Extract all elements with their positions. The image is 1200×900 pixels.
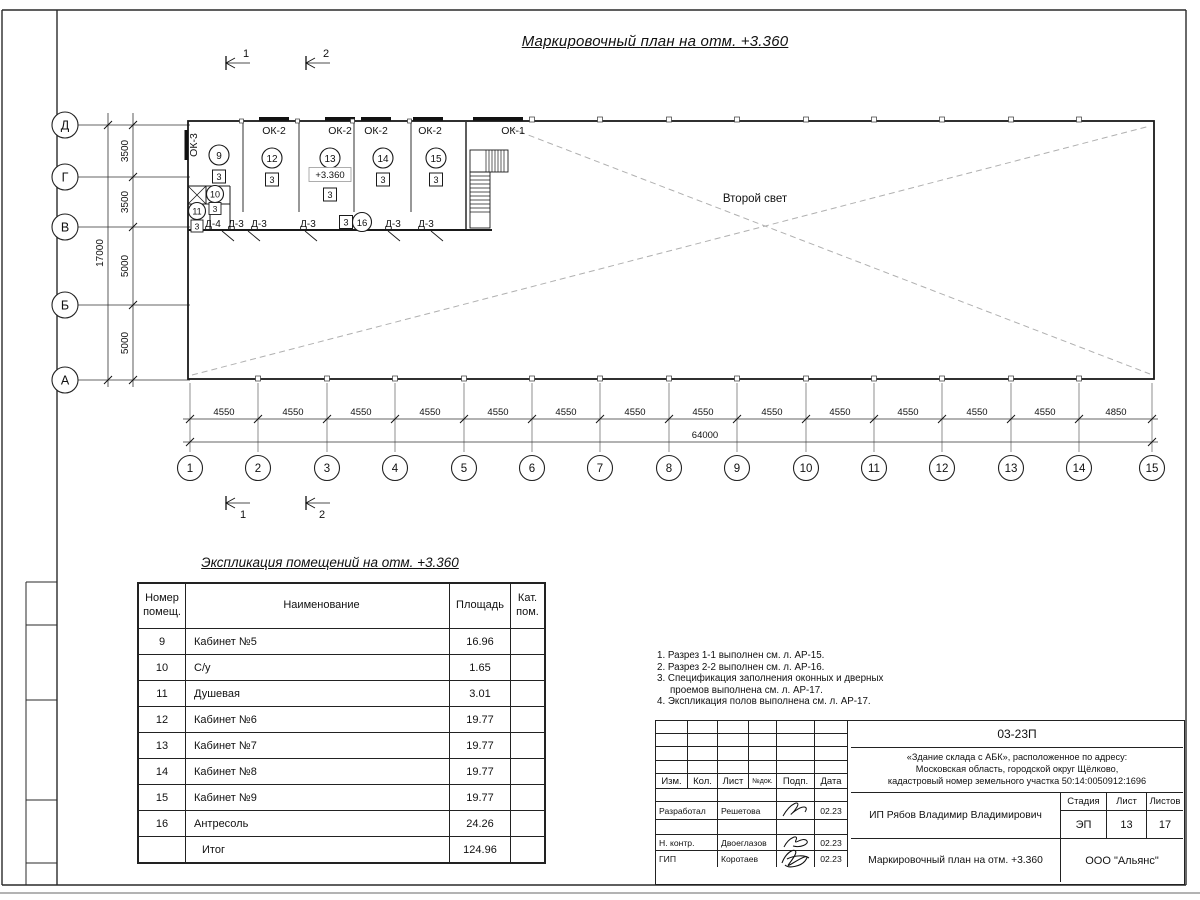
room-category: 3 — [343, 218, 348, 228]
project-line: кадастровый номер земельного участка 50:… — [888, 776, 1146, 788]
sheet-header: Лист — [1107, 793, 1147, 811]
cell-area: 19.77 — [450, 733, 511, 759]
col-list: Лист — [718, 774, 749, 789]
cell-cat — [511, 681, 546, 707]
axis-label: 3 — [324, 463, 330, 475]
date-value: 02.23 — [815, 851, 848, 867]
room-category: 3 — [380, 175, 385, 185]
dim-label: 4550 — [350, 407, 371, 418]
table-row: 12Кабинет №619.77 — [138, 707, 545, 733]
room-number: 13 — [324, 154, 336, 165]
cell-cat — [511, 785, 546, 811]
axis-label: 1 — [187, 463, 193, 475]
axis-label: 5 — [461, 463, 467, 475]
note-line: проемов выполнена см. л. АР-17. — [657, 685, 883, 697]
note-line: 3. Спецификация заполнения оконных и две… — [657, 673, 883, 685]
dim-label: 4550 — [897, 407, 918, 418]
signature-icon — [779, 843, 815, 877]
room-number: 16 — [357, 218, 368, 229]
col-header-cat: Кат. пом. — [511, 583, 546, 629]
dim-label: 4550 — [419, 407, 440, 418]
room-category: 3 — [195, 222, 200, 232]
cell-area: 19.77 — [450, 759, 511, 785]
window-label: ОК-2 — [328, 125, 352, 137]
cell-num: 13 — [138, 733, 186, 759]
room-category: 3 — [213, 204, 218, 214]
cell-name: Итог — [186, 837, 450, 864]
table-row: 9Кабинет №516.96 — [138, 629, 545, 655]
axis-label: 6 — [529, 463, 535, 475]
person-name: Двоеглазов — [718, 835, 777, 851]
signature-cell — [777, 802, 815, 820]
axis-label: 9 — [734, 463, 740, 475]
cell-cat — [511, 759, 546, 785]
role-label: ГИП — [656, 851, 718, 867]
room-number: 11 — [192, 207, 201, 217]
title-block-revision-grid: Изм. Кол. Лист №док. Подп. Дата Разработ… — [656, 721, 851, 884]
door-label: Д-3 — [418, 219, 434, 230]
table-row: 16Антресоль24.26 — [138, 811, 545, 837]
dim-label: 4550 — [692, 407, 713, 418]
stage-value: ЭП — [1061, 811, 1107, 839]
table-row: 15Кабинет №919.77 — [138, 785, 545, 811]
company-name: ООО "Альянс" — [1061, 839, 1183, 882]
date-value: 02.23 — [815, 835, 848, 851]
axis-label: 10 — [800, 463, 813, 475]
stage-header: Стадия — [1061, 793, 1107, 811]
column-wall-ticks — [240, 117, 1082, 381]
cell-name: Душевая — [186, 681, 450, 707]
cell-name: Кабинет №5 — [186, 629, 450, 655]
window-label: ОК-1 — [501, 125, 525, 137]
col-data: Дата — [815, 774, 848, 789]
cell-name: С/у — [186, 655, 450, 681]
col-kol: Кол. — [688, 774, 718, 789]
cell-cat — [511, 707, 546, 733]
dim-label: 4550 — [487, 407, 508, 418]
room-markers — [189, 145, 447, 232]
note-line: 1. Разрез 1-1 выполнен см. л. АР-15. — [657, 650, 883, 662]
axis-label: 2 — [255, 463, 261, 475]
dim-total-label: 17000 — [95, 239, 106, 267]
cell-name: Антресоль — [186, 811, 450, 837]
cell-cat — [511, 629, 546, 655]
axis-label: 12 — [936, 463, 949, 475]
note-line: 4. Экспликация полов выполнена см. л. АР… — [657, 696, 883, 708]
cell-cat — [511, 655, 546, 681]
section-number: 1 — [243, 48, 249, 60]
date-value: 02.23 — [815, 802, 848, 820]
window-label: ОК-3 — [188, 133, 200, 157]
axis-label: Г — [62, 171, 69, 185]
axis-label: 7 — [597, 463, 603, 475]
project-description: «Здание склада с АБК», расположенное по … — [851, 748, 1183, 793]
room-number: 9 — [216, 151, 222, 162]
plan-title: Маркировочный план на отм. +3.360 — [355, 33, 955, 50]
cell-name: Кабинет №6 — [186, 707, 450, 733]
door-label: Д-3 — [228, 219, 244, 230]
room-category: 3 — [216, 172, 221, 182]
cell-name: Кабинет №8 — [186, 759, 450, 785]
cell-name: Кабинет №7 — [186, 733, 450, 759]
axis-label: 14 — [1073, 463, 1086, 475]
cell-area: 3.01 — [450, 681, 511, 707]
door-label: Д-3 — [300, 219, 316, 230]
dim-label: 4550 — [624, 407, 645, 418]
cell-num: 9 — [138, 629, 186, 655]
room-number: 12 — [266, 154, 278, 165]
cell-area: 19.77 — [450, 785, 511, 811]
door-label: Д-4 — [205, 219, 221, 230]
table-row: 10С/у1.65 — [138, 655, 545, 681]
door-leaves — [222, 231, 443, 241]
cell-area: 19.77 — [450, 707, 511, 733]
section-number: 2 — [319, 509, 325, 521]
cell-cat — [511, 811, 546, 837]
sheet-value: 13 — [1107, 811, 1147, 839]
axis-label: А — [61, 374, 70, 388]
cell-cat — [511, 837, 546, 864]
role-label: Н. контр. — [656, 835, 718, 851]
explication-header-row: Номер помещ. Наименование Площадь Кат. п… — [138, 583, 545, 629]
cell-num: 11 — [138, 681, 186, 707]
table-row: 13Кабинет №719.77 — [138, 733, 545, 759]
level-mark: +3.360 — [315, 170, 344, 181]
col-podp: Подп. — [777, 774, 815, 789]
window-label: ОК-2 — [364, 125, 388, 137]
person-name: Коротаев — [718, 851, 777, 867]
axis-label: Д — [61, 119, 70, 133]
client-name: ИП Рябов Владимир Владимирович — [851, 793, 1061, 839]
col-header-num: Номер помещ. — [138, 583, 186, 629]
cell-num: 12 — [138, 707, 186, 733]
axis-label: Б — [61, 299, 69, 313]
dim-label: 3500 — [120, 190, 131, 213]
room-category: 3 — [269, 175, 274, 185]
staircase — [470, 150, 508, 228]
axis-label: 13 — [1005, 463, 1018, 475]
title-block: Изм. Кол. Лист №док. Подп. Дата Разработ… — [655, 720, 1185, 885]
cell-num: 16 — [138, 811, 186, 837]
dim-total-label: 64000 — [692, 430, 718, 441]
person-name: Решетова — [718, 802, 777, 820]
cell-cat — [511, 733, 546, 759]
project-line: Московская область, городской округ Щёлк… — [916, 764, 1119, 776]
axis-label: 4 — [392, 463, 399, 475]
col-ndok: №док. — [749, 774, 777, 789]
cell-area: 24.26 — [450, 811, 511, 837]
sheets-header: Листов — [1147, 793, 1183, 811]
note-line: 2. Разрез 2-2 выполнен см. л. АР-16. — [657, 662, 883, 674]
cell-num: 15 — [138, 785, 186, 811]
room-number: 14 — [377, 154, 389, 165]
cell-area: 124.96 — [450, 837, 511, 864]
table-row: 11Душевая3.01 — [138, 681, 545, 707]
dim-label: 4850 — [1105, 407, 1126, 418]
row-axis-labels: Д Г В Б А 3500 3500 5000 5000 17000 — [61, 119, 131, 388]
axis-label: В — [61, 221, 69, 235]
axis-label: 8 — [666, 463, 672, 475]
dim-label: 5000 — [120, 254, 131, 277]
drawing-sheet: Д Г В Б А 3500 3500 5000 5000 17000 — [0, 0, 1200, 900]
window-label: ОК-2 — [262, 125, 286, 137]
dim-label: 4550 — [555, 407, 576, 418]
col-header-name: Наименование — [186, 583, 450, 629]
dim-label: 3500 — [120, 139, 131, 162]
table-row: 14Кабинет №819.77 — [138, 759, 545, 785]
drawing-name: Маркировочный план на отм. +3.360 — [851, 839, 1061, 882]
dim-label: 4550 — [282, 407, 303, 418]
cell-area: 1.65 — [450, 655, 511, 681]
explication-title: Экспликация помещений на отм. +3.360 — [130, 555, 530, 570]
axis-label: 11 — [868, 463, 880, 475]
dim-label: 4550 — [966, 407, 987, 418]
cell-area: 16.96 — [450, 629, 511, 655]
cell-num — [138, 837, 186, 864]
cell-name: Кабинет №9 — [186, 785, 450, 811]
role-label: Разработал — [656, 802, 718, 820]
signature-cell — [777, 851, 815, 867]
notes-list: 1. Разрез 1-1 выполнен см. л. АР-15. 2. … — [657, 650, 883, 708]
room-number: 10 — [210, 190, 220, 200]
dim-label: 4550 — [829, 407, 850, 418]
explication-table: Номер помещ. Наименование Площадь Кат. п… — [137, 582, 546, 864]
cell-num: 10 — [138, 655, 186, 681]
doc-number: 03-23П — [851, 721, 1183, 748]
dim-label: 5000 — [120, 331, 131, 354]
room-category: 3 — [327, 190, 332, 200]
door-label: Д-3 — [385, 219, 401, 230]
dim-label: 4550 — [1034, 407, 1055, 418]
table-row-total: Итог124.96 — [138, 837, 545, 864]
section-number: 1 — [240, 509, 246, 521]
door-label: Д-3 — [251, 219, 267, 230]
second-light-label: Второй свет — [723, 193, 788, 205]
axis-label: 15 — [1146, 463, 1159, 475]
col-header-area: Площадь — [450, 583, 511, 629]
cell-num: 14 — [138, 759, 186, 785]
room-number: 15 — [430, 154, 442, 165]
dim-label: 4550 — [761, 407, 782, 418]
dim-label: 4550 — [213, 407, 234, 418]
room-category: 3 — [433, 175, 438, 185]
project-line: «Здание склада с АБК», расположенное по … — [907, 752, 1128, 764]
sheets-value: 17 — [1147, 811, 1183, 839]
col-izm: Изм. — [656, 774, 688, 789]
window-label: ОК-2 — [418, 125, 442, 137]
section-number: 2 — [323, 48, 329, 60]
